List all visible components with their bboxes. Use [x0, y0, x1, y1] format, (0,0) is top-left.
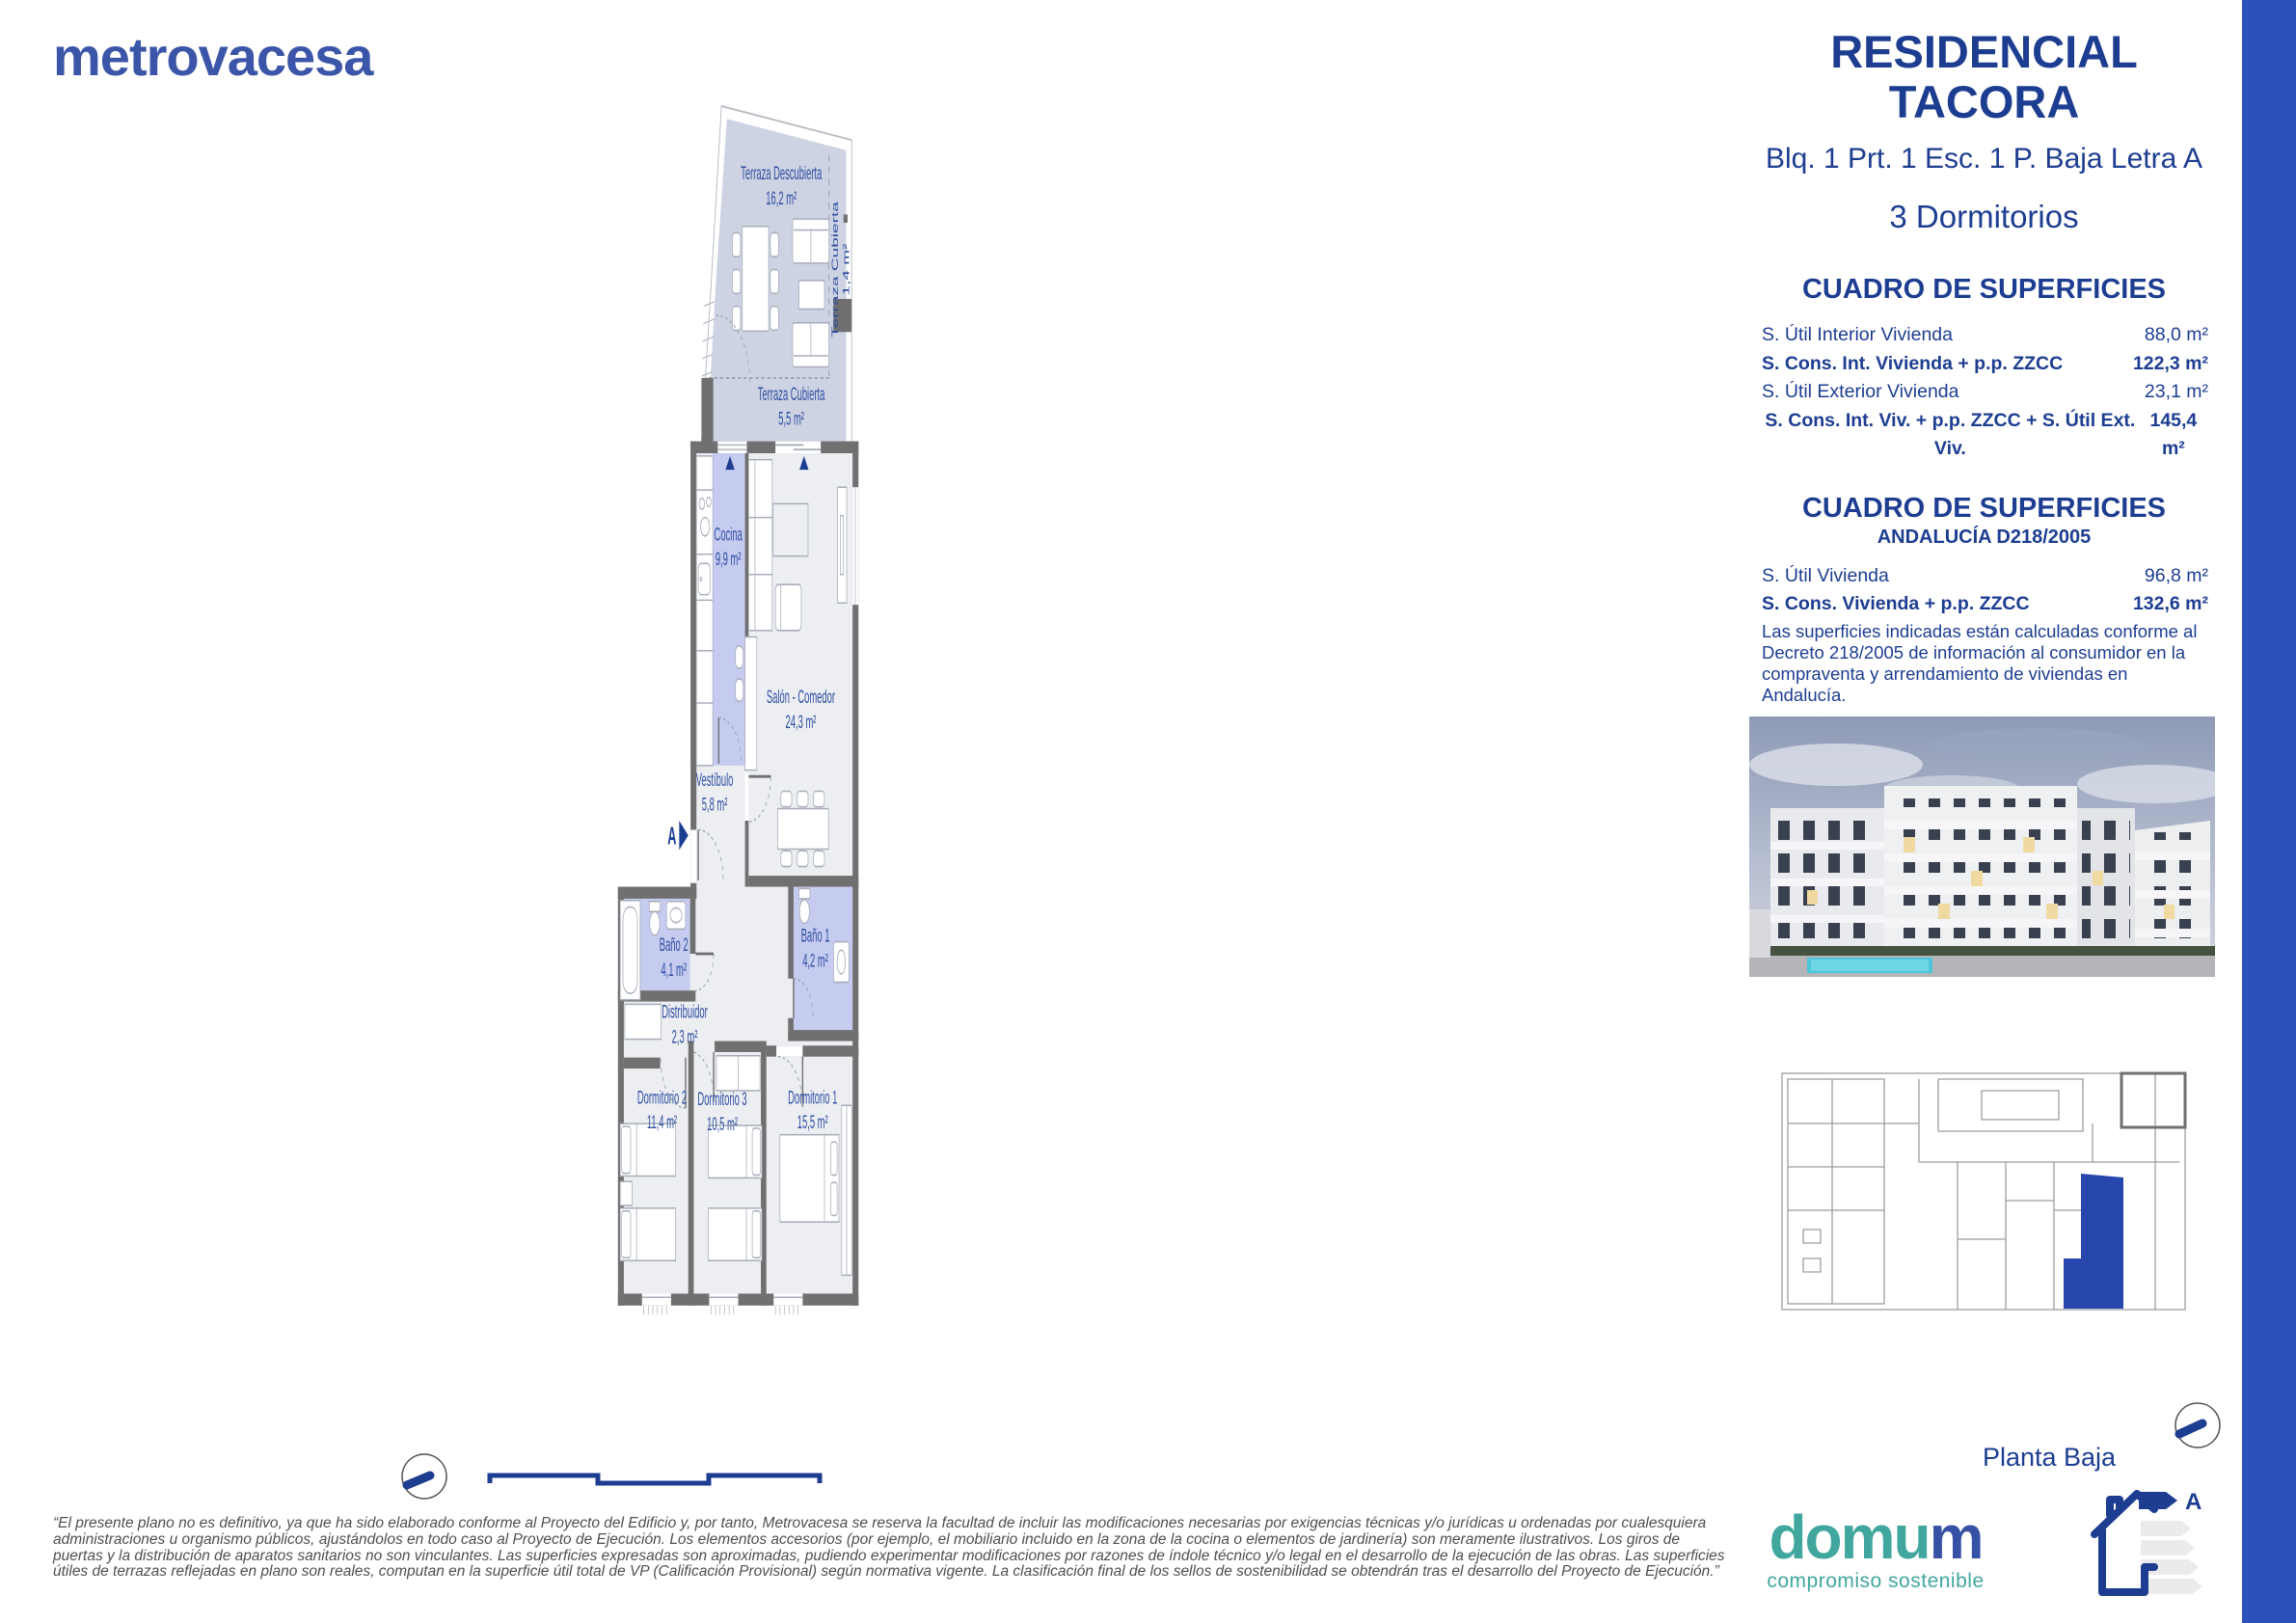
svg-text:Terraza Cubierta: Terraza Cubierta — [830, 201, 841, 338]
highlighted-unit — [2064, 1174, 2123, 1309]
svg-text:4,1 m²: 4,1 m² — [661, 960, 687, 981]
surfaces-table-andalucia: S. Útil Vivienda96,8 m² S. Cons. Viviend… — [1726, 562, 2242, 619]
decree-note: Las superficies indicadas están calculad… — [1726, 619, 2242, 706]
svg-text:Terraza Descubierta: Terraza Descubierta — [741, 164, 823, 185]
table-row: S. Cons. Int. Viv. + p.p. ZZCC + S. Útil… — [1726, 407, 2242, 464]
terrace-wall-block — [701, 378, 713, 443]
svg-text:5,5 m²: 5,5 m² — [778, 409, 804, 430]
svg-text:2,3 m²: 2,3 m² — [672, 1027, 698, 1048]
bedrooms-count: 3 Dormitorios — [1726, 199, 2242, 235]
table-row: S. Cons. Vivienda + p.p. ZZCC132,6 m² — [1726, 590, 2242, 619]
svg-text:Dormitorio 1: Dormitorio 1 — [788, 1088, 837, 1109]
surfaces-table-andalucia-subtitle: ANDALUCÍA D218/2005 — [1726, 527, 2242, 549]
svg-text:Dormitorio 3: Dormitorio 3 — [697, 1090, 746, 1111]
svg-text:Dormitorio 2: Dormitorio 2 — [637, 1088, 687, 1109]
svg-text:Terraza Cubierta: Terraza Cubierta — [758, 384, 825, 405]
svg-text:15,5 m²: 15,5 m² — [797, 1113, 828, 1134]
svg-text:5,8 m²: 5,8 m² — [702, 795, 728, 816]
domum-tagline: compromiso sostenible — [1750, 1570, 2001, 1593]
surfaces-table: S. Útil Interior Vivienda88,0 m² S. Cons… — [1726, 321, 2242, 464]
window-blinds — [644, 1306, 798, 1315]
north-compass-icon — [2160, 1393, 2232, 1461]
svg-text:16,2 m²: 16,2 m² — [766, 188, 797, 209]
table-row: S. Útil Interior Vivienda88,0 m² — [1726, 321, 2242, 350]
kitchen-counter — [696, 456, 713, 766]
cocina-floor — [713, 453, 744, 766]
svg-text:Vestíbulo: Vestíbulo — [696, 770, 734, 791]
plan-scale-area — [386, 1418, 839, 1514]
graphic-scale-bar — [490, 1475, 820, 1483]
table-row: S. Cons. Int. Vivienda + p.p. ZZCC122,3 … — [1726, 350, 2242, 379]
svg-text:1,4 m²: 1,4 m² — [841, 244, 851, 296]
floor-plan: A Terraza Descubierta 16,2 m² Terraza Cu… — [608, 68, 1148, 1418]
svg-text:4,2 m²: 4,2 m² — [802, 951, 828, 972]
side-accent-bar — [2242, 0, 2296, 1623]
svg-text:Cocina: Cocina — [715, 525, 743, 546]
keyplan-caption: Planta Baja — [1929, 1443, 2170, 1473]
svg-text:Baño 1: Baño 1 — [801, 926, 830, 947]
table-row: S. Útil Vivienda96,8 m² — [1726, 562, 2242, 591]
metrovacesa-logo: metrovacesa — [53, 25, 372, 88]
table-row: S. Útil Exterior Vivienda23,1 m² — [1726, 378, 2242, 407]
svg-text:11,4 m²: 11,4 m² — [647, 1113, 677, 1134]
dorm3-furniture — [708, 1056, 762, 1260]
svg-text:9,9 m²: 9,9 m² — [716, 550, 742, 571]
svg-text:Salón - Comedor: Salón - Comedor — [767, 688, 835, 709]
svg-text:Distribuidor: Distribuidor — [662, 1002, 708, 1023]
key-plan — [1774, 1066, 2199, 1326]
legal-disclaimer: “El presente plano no es definitivo, ya … — [53, 1516, 1731, 1581]
svg-text:10,5 m²: 10,5 m² — [707, 1114, 738, 1135]
svg-text:24,3 m²: 24,3 m² — [786, 712, 817, 733]
energy-efficiency-icon: A — [2081, 1471, 2240, 1606]
section-marker-label: A — [667, 824, 676, 851]
page-title: RESIDENCIAL TACORA — [1726, 27, 2242, 127]
surfaces-table-andalucia-title: CUADRO DE SUPERFICIES — [1726, 493, 2242, 525]
surfaces-table-title: CUADRO DE SUPERFICIES — [1726, 274, 2242, 306]
svg-text:Baño 2: Baño 2 — [660, 935, 689, 957]
domum-logo: domum compromiso sostenible — [1750, 1506, 2001, 1593]
section-marker-arrow-icon — [679, 821, 688, 850]
energy-class-label: A — [2185, 1489, 2201, 1515]
building-render-photo — [1749, 717, 2215, 977]
unit-reference: Blq. 1 Prt. 1 Esc. 1 P. Baja Letra A — [1726, 143, 2242, 176]
